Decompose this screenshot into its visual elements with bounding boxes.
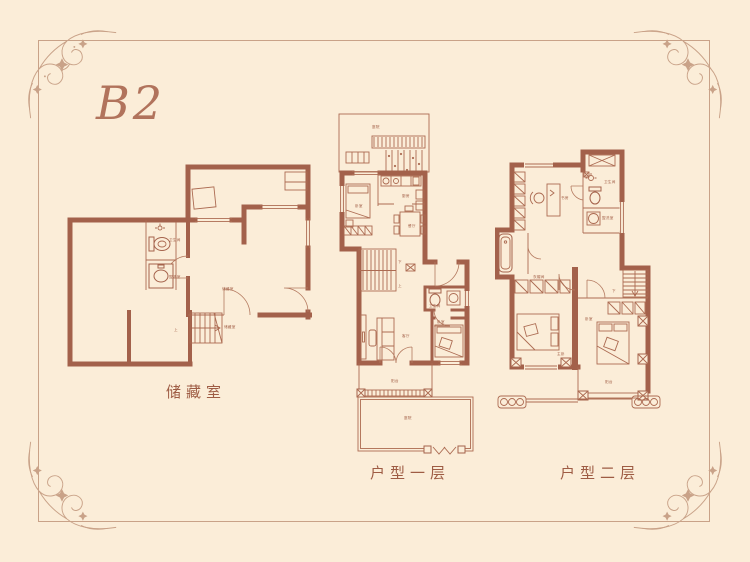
- basin-icon-floor2: [587, 212, 600, 225]
- floor2-caption: 户型二层: [540, 462, 660, 483]
- bathtub-icon: [499, 234, 512, 272]
- entry-door-arc: [435, 262, 459, 286]
- room-label-bathroom2: 卫生间: [604, 179, 616, 184]
- courtyard-bottom: [358, 397, 473, 454]
- stairs-down-label: 下: [398, 260, 402, 264]
- room-label-study: 书房: [561, 195, 569, 200]
- corner-flourish-bottom-right: [631, 439, 726, 534]
- room-label-storage2: 储藏室: [224, 324, 236, 329]
- room-label-bathroom1: 卫生间: [429, 303, 441, 308]
- basement-windows: [195, 206, 309, 248]
- room-label-bedroom3: 卧室: [585, 316, 593, 321]
- floor1-caption: 户型一层: [350, 462, 470, 483]
- floor2-walls: [497, 152, 648, 393]
- closet-row-bedroom2: [608, 302, 645, 314]
- bed-icon-bedroom2: [597, 316, 648, 364]
- room-label-washroom: 盥洗室: [169, 274, 181, 279]
- stairs-icon-floor1: [359, 249, 415, 291]
- courtyard-top: [339, 114, 429, 174]
- storage-boxes: [192, 172, 307, 209]
- room-label-bedroom1: 卧室: [355, 203, 363, 208]
- floorplan-sheet: B2: [0, 0, 750, 562]
- floor1-floorplan: 庭院 卧室 厨房 餐厅 下 上 客厅 卫生间 卧室 阳台 庭院: [336, 106, 484, 460]
- room-label-closet: 衣帽间: [533, 274, 545, 279]
- toilet-icon: [149, 237, 170, 251]
- unit-label: B2: [96, 76, 165, 130]
- basement-floorplan: 卫生间 盥洗室 储藏室 储藏室 上: [64, 160, 312, 372]
- room-label-balcony: 阳台: [391, 378, 399, 383]
- dining-table-icon: [394, 206, 425, 236]
- bed-icon-master: [517, 314, 559, 350]
- toilet-icon-floor2: [589, 187, 601, 204]
- closet-row-master: [515, 280, 570, 293]
- wardrobe-column: [514, 172, 525, 230]
- sofa-icon: [361, 315, 394, 360]
- corner-flourish-top-right: [631, 26, 726, 121]
- stairs-icon: [190, 313, 222, 343]
- basement-caption: 储藏室: [136, 381, 256, 402]
- desk-icon: [530, 184, 560, 216]
- room-label-master: 主卧: [557, 351, 565, 356]
- floor2-floorplan: 书房 卫生间 盥洗室 衣帽间 主卧 卧室 下 阳台: [495, 146, 663, 412]
- room-label-living: 客厅: [402, 333, 410, 338]
- room-label-dining: 餐厅: [408, 223, 416, 228]
- room-label-courtyard2: 庭院: [404, 415, 412, 420]
- room-label-washroom2: 盥洗室: [602, 215, 614, 220]
- stairs-up-label: 上: [398, 283, 402, 288]
- shower-icon: [155, 224, 165, 231]
- room-label-courtyard: 庭院: [372, 124, 380, 129]
- room-label-bathroom: 卫生间: [169, 237, 181, 242]
- room-label-storage1: 储藏室: [222, 286, 234, 291]
- bed-icon2-floor1: [435, 325, 463, 357]
- stairs-down-label2: 下: [612, 289, 616, 293]
- room-label-balcony2: 阳台: [605, 379, 613, 384]
- balcony-floor1: [357, 347, 432, 397]
- corner-flourish-bottom-left: [24, 439, 119, 534]
- stairs-up-label: 上: [174, 327, 178, 332]
- room-label-kitchen: 厨房: [402, 193, 410, 198]
- room-label-bedroom2: 卧室: [437, 319, 445, 324]
- stairs-icon-floor2: [623, 270, 648, 297]
- kitchen-counter: [381, 176, 424, 210]
- shaft-box: [584, 155, 615, 177]
